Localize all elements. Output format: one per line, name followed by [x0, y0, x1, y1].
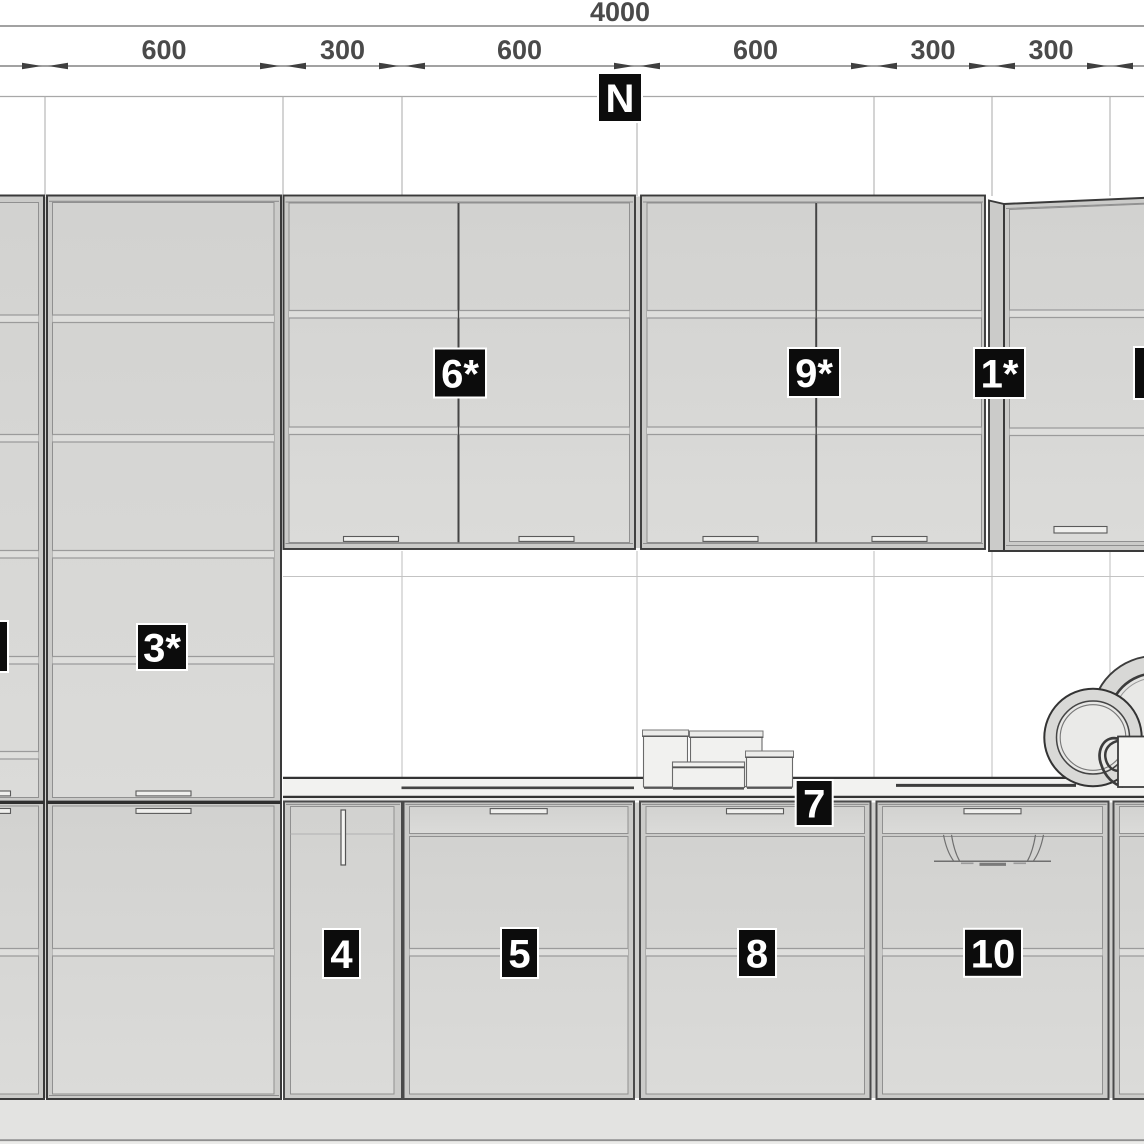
svg-text:5: 5 — [508, 933, 530, 977]
svg-text:6*: 6* — [441, 353, 479, 397]
svg-text:300: 300 — [320, 35, 365, 65]
svg-text:7: 7 — [803, 783, 825, 827]
svg-text:10: 10 — [971, 932, 1016, 976]
svg-text:4000: 4000 — [590, 0, 650, 27]
svg-text:1*: 1* — [981, 353, 1019, 397]
svg-text:8: 8 — [746, 933, 768, 977]
svg-text:3*: 3* — [143, 627, 181, 671]
svg-text:600: 600 — [497, 35, 542, 65]
svg-text:600: 600 — [733, 35, 778, 65]
svg-text:4: 4 — [330, 933, 353, 977]
svg-text:N: N — [606, 77, 635, 121]
svg-text:300: 300 — [910, 35, 955, 65]
svg-text:300: 300 — [1028, 35, 1073, 65]
svg-text:600: 600 — [141, 35, 186, 65]
svg-text:9*: 9* — [795, 352, 833, 396]
